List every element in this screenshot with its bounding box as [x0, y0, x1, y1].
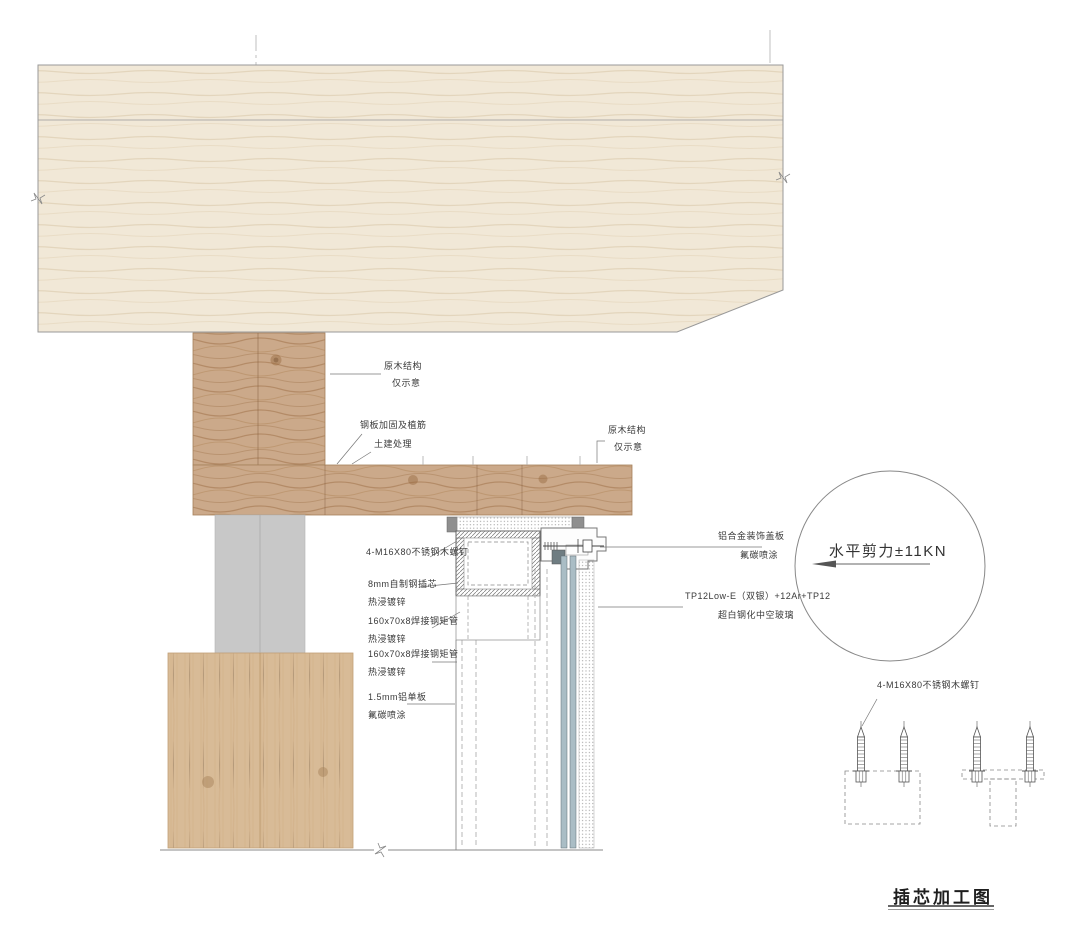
insert-core-detail — [845, 721, 1044, 826]
insulation-band — [579, 560, 594, 848]
note-steel-plate-line2: 土建处理 — [374, 440, 412, 449]
break-mark-ground — [375, 843, 386, 857]
wood-screw-2 — [896, 721, 912, 787]
anchor-block-left — [447, 517, 457, 532]
note-timber-top-line2: 仅示意 — [392, 379, 421, 388]
label-steel-core-line1: 8mm自制钢插芯 — [368, 580, 437, 589]
note-steel-plate-line1: 钢板加固及植筋 — [360, 421, 427, 430]
drawing-canvas — [0, 0, 1080, 942]
label-glass-line1: TP12Low-E（双银）+12Ar+TP12 — [685, 592, 831, 601]
detail-title: 插芯加工图 — [893, 883, 993, 908]
top-wood-slab — [31, 65, 790, 332]
shear-force-note: 水平剪力±11KN — [788, 540, 988, 561]
label-cover-plate-line1: 铝合金装饰盖板 — [718, 532, 785, 541]
label-steel-tube1-line2: 热浸镀锌 — [368, 635, 406, 644]
steel-tube-lower — [456, 596, 540, 640]
insulated-glass-unit — [561, 556, 576, 848]
shear-arrow-head — [812, 561, 836, 568]
label-stainless-screw: 4-M16X80不锈钢木螺钉 — [366, 548, 469, 557]
shear-force-circle — [795, 471, 985, 661]
timber-beam — [193, 456, 632, 515]
label-steel-tube1-line1: 160x70x8焊接钢矩管 — [368, 617, 459, 626]
label-steel-core-line2: 热浸镀锌 — [368, 598, 406, 607]
label-cover-plate-line2: 氟碳喷涂 — [740, 551, 778, 560]
steel-tube-section — [456, 531, 540, 596]
label-glass-line2: 超白钢化中空玻璃 — [718, 611, 794, 620]
wood-screw-4 — [1022, 721, 1038, 787]
core-stem-right — [990, 779, 1016, 826]
label-aluminum-panel-line2: 氟碳喷涂 — [368, 711, 406, 720]
note-timber-top-line1: 原木结构 — [384, 362, 422, 371]
timber-base-block — [168, 653, 353, 848]
note-timber-right-line2: 仅示意 — [614, 443, 643, 452]
wood-screw-3 — [969, 721, 985, 787]
label-aluminum-panel-line1: 1.5mm铝单板 — [368, 693, 427, 702]
wood-screw-1 — [853, 721, 869, 787]
note-timber-right-line1: 原木结构 — [608, 426, 646, 435]
timber-column — [193, 333, 325, 465]
label-steel-tube2-line1: 160x70x8焊接钢矩管 — [368, 650, 459, 659]
construction-detail-drawing: 原木结构 仅示意 钢板加固及植筋 土建处理 原木结构 仅示意 4-M16X80不… — [0, 0, 1080, 942]
concrete-column — [215, 515, 305, 653]
label-insert-screw: 4-M16X80不锈钢木螺钉 — [877, 681, 980, 690]
label-steel-tube2-line2: 热浸镀锌 — [368, 668, 406, 677]
